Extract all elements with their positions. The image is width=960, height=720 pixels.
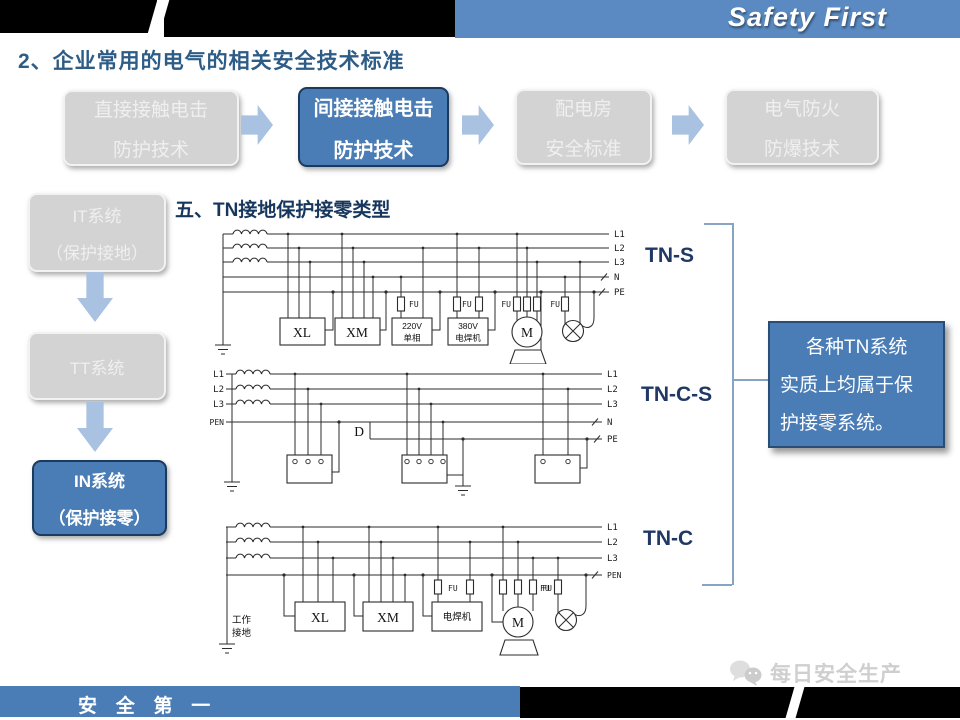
arrow-right-icon — [462, 105, 494, 145]
bus-label-l2-left: L2 — [213, 385, 224, 395]
flow-box-line: （保护接零） — [49, 504, 151, 529]
flow-box-line: 配电房 — [555, 94, 612, 121]
note-box: 各种TN系统 实质上均属于保 护接零系统。 — [768, 321, 945, 448]
flow-box-line: 间接接触电击 — [314, 92, 434, 121]
slide: Safety First 2、企业常用的电气的相关安全技术标准 直接接触电击 防… — [0, 0, 960, 720]
flow-box-tt-system: TT系统 — [28, 332, 166, 400]
fuse-label: FU — [542, 584, 552, 593]
bus-label-n-right: N — [607, 418, 612, 428]
bus-label-l1: L1 — [614, 230, 625, 240]
flow-box-it-system: IT系统 （保护接地） — [28, 193, 166, 272]
device-label-xm: XM — [346, 325, 368, 340]
label-tn-s: TN-S — [645, 244, 694, 268]
bus-label-pe-right: PE — [607, 435, 618, 445]
footer-bar-black — [520, 687, 960, 718]
flow-box-fire-explosion: 电气防火 防爆技术 — [725, 89, 879, 165]
bus-label-pen: PEN — [607, 571, 622, 580]
device-label-xl: XL — [311, 610, 329, 625]
watermark-text: 每日安全生产 — [770, 658, 902, 688]
tnc-circuit-diagram: L1 L2 L3 PEN XL XM 电焊机 M FU FU FU 工作 接地 — [208, 512, 640, 664]
flow-box-line: IN系统 — [74, 467, 125, 492]
bus-label-l1-right: L1 — [607, 370, 618, 380]
flow-box-line: 防护技术 — [113, 135, 189, 162]
working-ground-label-2: 接地 — [232, 627, 252, 639]
working-ground-label-1: 工作 — [232, 614, 252, 626]
fuse-label: FU — [501, 300, 511, 309]
bus-label-l2: L2 — [614, 244, 625, 254]
bus-label-l3-right: L3 — [607, 400, 618, 410]
note-line: 护接零系统。 — [780, 405, 933, 443]
device-label-380v: 380V — [458, 321, 478, 331]
note-line: 各种TN系统 — [780, 329, 933, 367]
flow-box-line: TT系统 — [70, 354, 125, 379]
device-label-welder: 电焊机 — [443, 611, 472, 623]
bus-label-l2-right: L2 — [607, 385, 618, 395]
brand-text: Safety First — [728, 2, 887, 33]
bus-label-l1: L1 — [607, 523, 618, 533]
bracket-mid-stub — [733, 379, 768, 381]
bus-label-l3-left: L3 — [213, 400, 224, 410]
bus-label-l3: L3 — [614, 258, 625, 268]
bus-label-n: N — [614, 273, 619, 283]
header-bar-black-left — [0, 0, 157, 33]
flow-box-in-system-active: IN系统 （保护接零） — [32, 460, 167, 536]
fuse-label: FU — [448, 584, 458, 593]
footer-slogan: 安 全 第 一 — [78, 691, 217, 718]
header-bar-black-right — [164, 0, 455, 37]
page-title: 2、企业常用的电气的相关安全技术标准 — [18, 45, 405, 75]
arrow-down-icon — [77, 402, 113, 452]
device-label-xm: XM — [377, 610, 399, 625]
flow-box-direct-contact: 直接接触电击 防护技术 — [63, 90, 239, 166]
bus-label-pe: PE — [614, 288, 625, 298]
bus-label-l3: L3 — [607, 554, 618, 564]
flow-box-line: 防护技术 — [334, 134, 414, 163]
bus-label-l2: L2 — [607, 538, 618, 548]
fuse-label: FU — [550, 300, 560, 309]
arrow-right-icon — [241, 105, 273, 145]
flow-box-line: （保护接地） — [46, 239, 148, 264]
flow-box-distribution-room: 配电房 安全标准 — [515, 89, 652, 165]
fuse-label: FU — [409, 300, 419, 309]
bracket-vertical — [732, 223, 734, 585]
bracket-bottom-stub — [702, 584, 732, 586]
chat-bubbles-icon — [728, 659, 766, 687]
tncs-circuit-diagram: L1 L2 L3 PEN L1 L2 L3 N PE D — [208, 362, 640, 510]
bus-label-pen-left: PEN — [210, 418, 225, 427]
bus-label-l1-left: L1 — [213, 370, 224, 380]
flow-box-line: 防爆技术 — [764, 134, 840, 161]
device-label-xl: XL — [293, 325, 311, 340]
device-label-220v: 220V — [402, 321, 422, 331]
arrow-down-icon — [77, 272, 113, 322]
flow-box-indirect-contact-active: 间接接触电击 防护技术 — [298, 87, 449, 167]
watermark: 每日安全生产 — [728, 658, 902, 688]
flow-box-line: 直接接触电击 — [94, 95, 208, 122]
flow-box-line: 电气防火 — [764, 94, 840, 121]
motor-label: M — [521, 325, 533, 340]
device-label-single-phase: 单相 — [403, 333, 420, 343]
device-label-welder: 电焊机 — [455, 333, 481, 343]
section-heading: 五、TN接地保护接零类型 — [175, 195, 390, 222]
label-tn-c-s: TN-C-S — [641, 383, 712, 407]
arrow-right-icon — [672, 105, 704, 145]
motor-label: M — [512, 615, 524, 630]
flow-box-line: IT系统 — [72, 202, 121, 227]
bracket-top-stub — [704, 223, 732, 225]
tns-circuit-diagram: L1 L2 L3 N PE XL XM 220V 单相 380V 电焊机 M F… — [215, 222, 640, 364]
note-line: 实质上均属于保 — [780, 367, 933, 405]
label-tn-c: TN-C — [643, 527, 693, 551]
split-point-label: D — [354, 424, 364, 439]
fuse-label: FU — [462, 300, 472, 309]
flow-box-line: 安全标准 — [545, 134, 621, 161]
